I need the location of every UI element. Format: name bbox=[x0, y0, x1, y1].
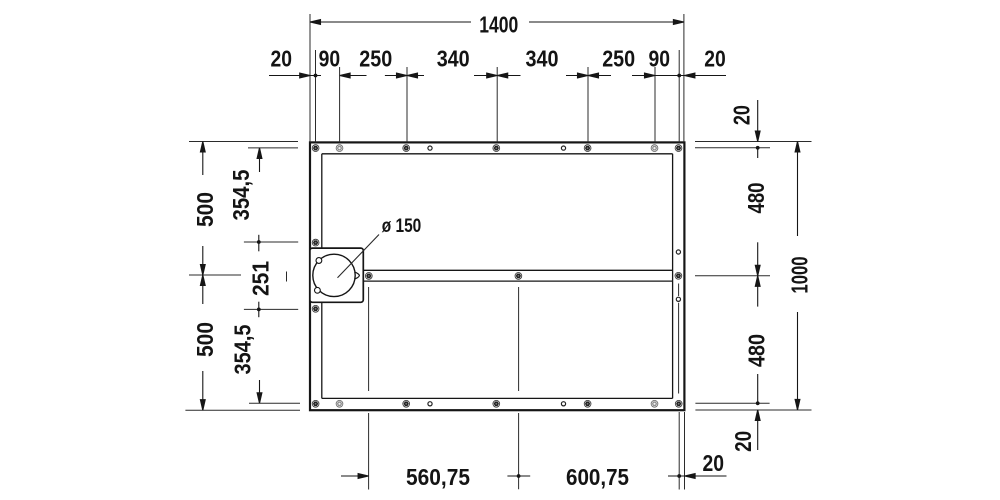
svg-text:90: 90 bbox=[319, 46, 341, 72]
svg-text:500: 500 bbox=[192, 192, 218, 227]
svg-text:250: 250 bbox=[359, 46, 392, 72]
svg-text:340: 340 bbox=[526, 46, 559, 72]
svg-text:250: 250 bbox=[602, 46, 635, 72]
svg-text:560,75: 560,75 bbox=[406, 464, 470, 490]
svg-text:354,5: 354,5 bbox=[228, 170, 254, 221]
svg-text:600,75: 600,75 bbox=[566, 464, 629, 490]
svg-text:20: 20 bbox=[704, 46, 726, 72]
svg-text:480: 480 bbox=[743, 183, 769, 214]
svg-text:340: 340 bbox=[437, 46, 470, 72]
svg-text:354,5: 354,5 bbox=[230, 325, 256, 375]
svg-text:90: 90 bbox=[648, 46, 670, 72]
svg-text:20: 20 bbox=[730, 431, 756, 452]
svg-text:500: 500 bbox=[192, 322, 218, 357]
svg-text:480: 480 bbox=[743, 334, 769, 367]
svg-text:251: 251 bbox=[248, 261, 274, 296]
svg-text:1400: 1400 bbox=[479, 11, 518, 37]
svg-text:20: 20 bbox=[271, 46, 293, 72]
svg-text:1000: 1000 bbox=[787, 257, 813, 294]
svg-text:ø 150: ø 150 bbox=[382, 216, 422, 237]
svg-text:20: 20 bbox=[702, 450, 724, 476]
svg-text:20: 20 bbox=[729, 105, 755, 125]
